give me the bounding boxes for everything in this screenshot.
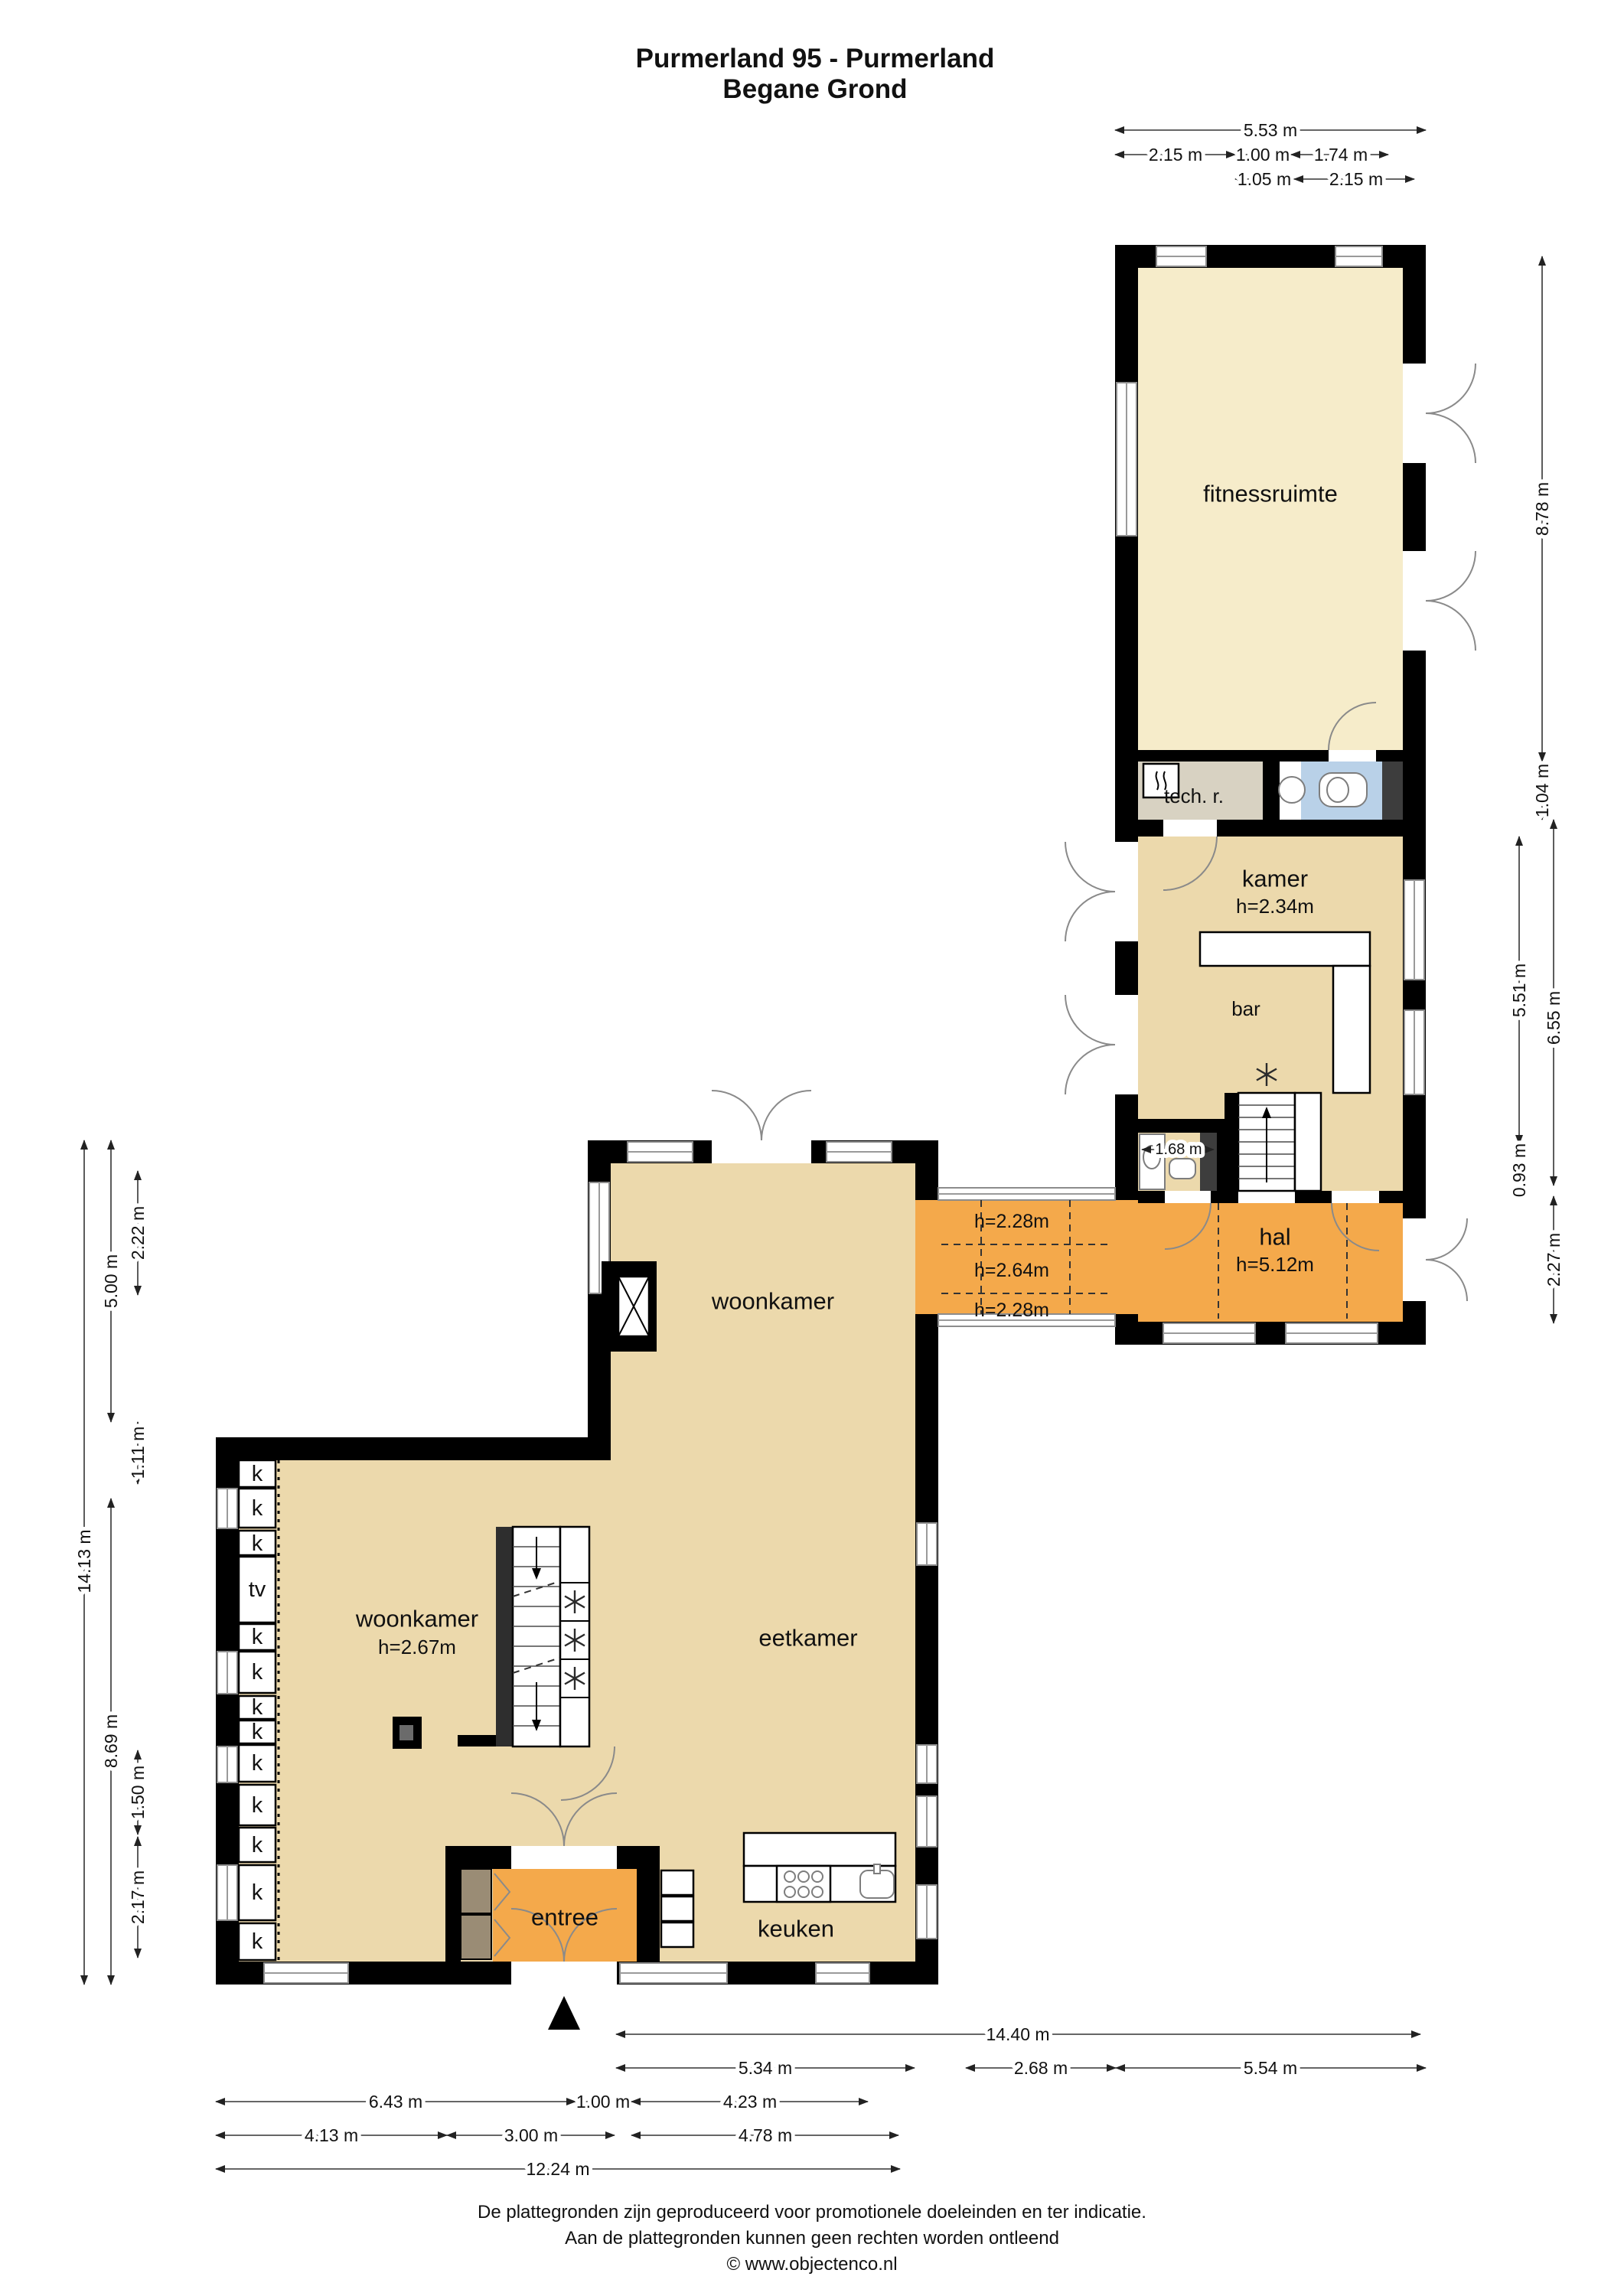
window: [917, 1885, 937, 1939]
window: [917, 1523, 937, 1565]
dim-label: 6.43 m: [369, 2092, 422, 2112]
entree-closet: [461, 1869, 491, 1913]
label-woonkamer: woonkamer: [355, 1606, 478, 1632]
kitchen-sink: [860, 1870, 894, 1898]
dim-label: 5.34 m: [739, 2058, 792, 2078]
door-arc: [1065, 892, 1115, 941]
label-kamer: kamer: [1242, 866, 1308, 892]
title-line2: Begane Grond: [722, 74, 907, 104]
window: [827, 1142, 892, 1162]
window: [1163, 1323, 1255, 1343]
door-arc: [1065, 1045, 1115, 1094]
door-arc: [1426, 364, 1476, 413]
dim-label: 14.13 m: [74, 1529, 94, 1593]
dim-label: 2.15 m: [1329, 169, 1383, 189]
label-woonkamer-height: h=2.67m: [378, 1636, 456, 1658]
dim-label: 1.00 m: [576, 2092, 630, 2112]
closet-label: k: [252, 1880, 263, 1905]
footer: De plattegronden zijn geproduceerd voor …: [478, 2202, 1146, 2275]
dim-label: 3.00 m: [504, 2125, 558, 2145]
dim-label: 1.50 m: [128, 1766, 148, 1819]
window: [917, 1796, 937, 1847]
closet-label: k: [252, 1929, 263, 1954]
dim-label: 2.27 m: [1544, 1233, 1564, 1287]
window: [1156, 246, 1206, 266]
label-eetkamer: eetkamer: [758, 1625, 857, 1652]
dim-label: 8.78 m: [1532, 482, 1552, 536]
dim-label: 4.23 m: [723, 2092, 777, 2112]
window: [217, 1865, 237, 1920]
dim-label: 5.54 m: [1244, 2058, 1297, 2078]
north-arrow-icon: [548, 1996, 580, 2030]
fireplace-lower: [393, 1717, 422, 1749]
door-arc: [1426, 601, 1476, 651]
window: [1286, 1323, 1378, 1343]
dimensions-bottom: 14.40 m 5.34 m 2.68 m 5.54 m 6.43 m 1.00…: [216, 2024, 1426, 2179]
dim-label: 2.68 m: [1014, 2058, 1068, 2078]
label-bar: bar: [1231, 997, 1260, 1020]
closet-label: k: [252, 1531, 263, 1556]
page-title: Purmerland 95 - Purmerland Begane Grond: [636, 44, 995, 104]
fireplace-upper: [602, 1261, 657, 1352]
closet-label: k: [252, 1625, 263, 1649]
door-arc: [1426, 1218, 1467, 1260]
dim-label: 2.22 m: [128, 1206, 148, 1260]
dim-label: 2.17 m: [128, 1870, 148, 1924]
stairs-central: [496, 1527, 589, 1746]
label-techroom: tech. r.: [1164, 784, 1224, 807]
window: [917, 1745, 937, 1783]
window: [1404, 1010, 1424, 1094]
dim-label: 6.55 m: [1544, 991, 1564, 1045]
label-woonkamer-upper: woonkamer: [711, 1288, 834, 1315]
closet-label: k: [252, 1793, 263, 1818]
window: [1117, 383, 1136, 536]
entree-closet: [461, 1915, 491, 1959]
dim-label: 1.00 m: [1236, 145, 1290, 165]
title-line1: Purmerland 95 - Purmerland: [636, 44, 995, 73]
window: [264, 1963, 348, 1983]
window: [217, 1746, 237, 1782]
closet-row: k k k tv k k k k k k k k k: [239, 1460, 279, 1960]
duct-block: [1382, 762, 1403, 820]
toilet: [1169, 1159, 1195, 1179]
footer-copyright: © www.objectenco.nl: [726, 2254, 897, 2275]
closet-label: k: [252, 1695, 263, 1720]
kitchen-island: [744, 1833, 895, 1902]
dim-label: 1.74 m: [1314, 145, 1368, 165]
label-kamer-height: h=2.34m: [1236, 895, 1314, 918]
door-arc: [1426, 1260, 1467, 1301]
dim-label: 0.93 m: [1509, 1143, 1529, 1197]
dim-label: 5.51 m: [1509, 964, 1529, 1017]
door-arc: [1065, 995, 1115, 1045]
dim-label: 14.40 m: [986, 2024, 1049, 2044]
window: [628, 1142, 693, 1162]
label-keuken: keuken: [758, 1916, 834, 1942]
dim-label: 1.11 m: [128, 1427, 148, 1479]
bar-counter: [1200, 932, 1370, 966]
sink: [1279, 777, 1305, 803]
label-hal-height: h=5.12m: [1236, 1253, 1314, 1276]
dim-label: 4.78 m: [739, 2125, 792, 2145]
door-arc: [1065, 842, 1115, 892]
window-band: [938, 1188, 1115, 1200]
dimensions-right: 8.78 m 1.04 m 5.51 m 6.55 m 0.93 m 2.27 …: [1509, 256, 1564, 1323]
label-entree: entree: [531, 1904, 598, 1931]
closet-label: k: [252, 1496, 263, 1521]
label-fitnessruimte: fitnessruimte: [1203, 481, 1338, 507]
closet-label: k: [252, 1833, 263, 1857]
dim-label: 5.53 m: [1244, 120, 1297, 140]
window: [816, 1963, 869, 1983]
dim-label: 2.15 m: [1149, 145, 1202, 165]
footer-line2: Aan de plattegronden kunnen geen rechten…: [565, 2228, 1059, 2249]
footer-line1: De plattegronden zijn geproduceerd voor …: [478, 2202, 1146, 2223]
window: [1335, 246, 1382, 266]
window: [217, 1489, 237, 1528]
closet-label: k: [252, 1720, 263, 1744]
window: [1404, 880, 1424, 980]
closet-label: k: [252, 1462, 263, 1486]
closet-label: k: [252, 1751, 263, 1776]
dim-label: 12.24 m: [526, 2159, 589, 2179]
door-arc: [1426, 413, 1476, 463]
shelving: [661, 1870, 693, 1947]
bar-counter: [1333, 966, 1370, 1093]
duct-block: [1200, 1133, 1217, 1191]
door-arc: [1426, 551, 1476, 601]
floor-fitnessruimte: [1138, 268, 1403, 762]
label-corridor-zone-middle: h=2.64m: [974, 1260, 1049, 1281]
dimensions-left: 14.13 m 5.00 m 2.22 m 1.11 m 8.69 m 1.50…: [74, 1140, 148, 1985]
dim-label: 1.68 m: [1155, 1141, 1202, 1158]
dim-label: 1.04 m: [1532, 764, 1552, 817]
label-corridor-zone-bottom: h=2.28m: [974, 1300, 1049, 1321]
label-corridor-zone-top: h=2.28m: [974, 1211, 1049, 1232]
dimensions-top: 5.53 m 2.15 m 1.00 m 1.74 m 1.05 m 2.15 …: [1115, 120, 1426, 189]
door-arc: [712, 1091, 761, 1140]
tv-label: tv: [249, 1577, 266, 1602]
dim-label: 1.05 m: [1238, 169, 1291, 189]
floorplan-page: Purmerland 95 - Purmerland Begane Grond: [0, 0, 1624, 2296]
dim-label: 8.69 m: [101, 1714, 121, 1768]
toilet-bowl: [1327, 778, 1348, 802]
window: [217, 1652, 237, 1694]
dim-label: 5.00 m: [101, 1254, 121, 1308]
label-hal: hal: [1259, 1224, 1290, 1251]
closet-label: k: [252, 1660, 263, 1684]
window: [620, 1963, 727, 1983]
dim-label: 4.13 m: [305, 2125, 358, 2145]
door-arc: [761, 1091, 811, 1140]
faucet: [874, 1864, 880, 1874]
